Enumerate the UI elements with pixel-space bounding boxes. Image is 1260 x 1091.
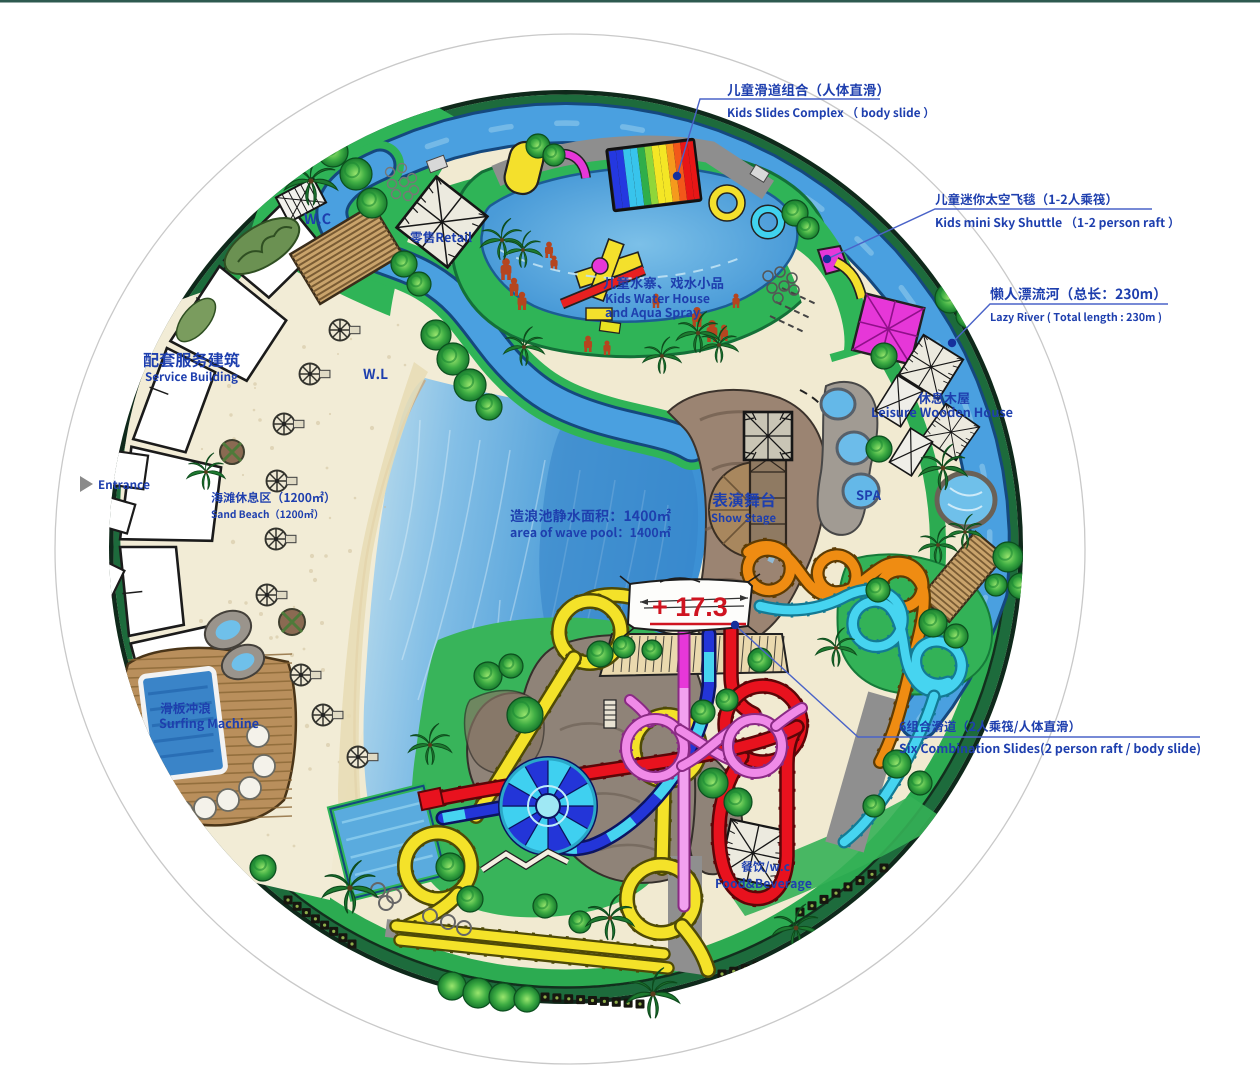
svg-text:+ 17.3: + 17.3 bbox=[652, 592, 728, 622]
